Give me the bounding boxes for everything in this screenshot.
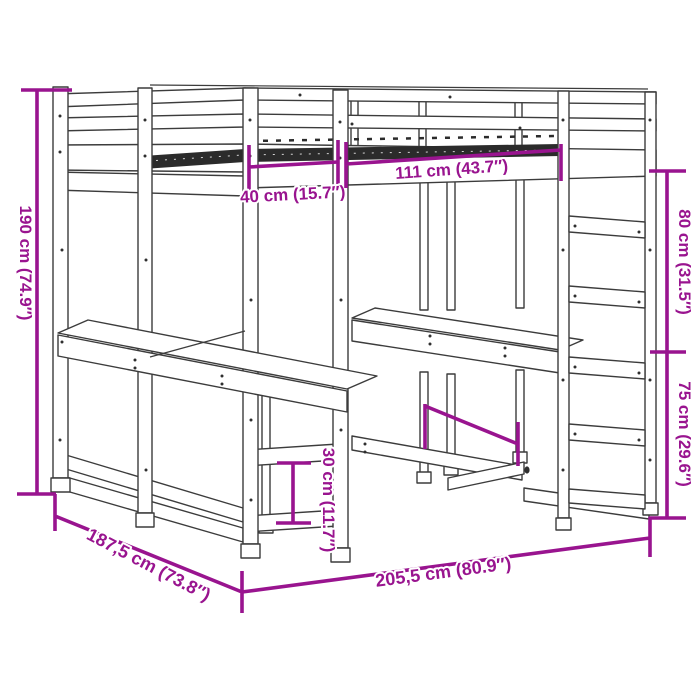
- dimension-label-187: 187,5 cm (73.8″): [84, 524, 215, 605]
- dimension-label-80: 80 cm (31.5″): [675, 209, 694, 314]
- desk-right: [352, 308, 583, 373]
- dimension-label-190: 190 cm (74.9″): [16, 206, 35, 321]
- dimension-label-75: 75 cm (29.6″): [675, 381, 694, 486]
- dimension-middle-30: 30 cm (11.7″): [276, 448, 338, 553]
- dimension-label-205: 205,5 cm (80.9″): [374, 553, 512, 591]
- bed-frame-drawing: [51, 85, 658, 562]
- dimension-label-30: 30 cm (11.7″): [319, 448, 338, 553]
- desk-left: [58, 320, 377, 412]
- keyhole: [524, 466, 529, 473]
- product-dimension-diagram: 190 cm (74.9″) 40 cm (15.7″) 111 cm (43.…: [0, 0, 700, 700]
- loft-bed-diagram: 190 cm (74.9″) 40 cm (15.7″) 111 cm (43.…: [0, 0, 700, 700]
